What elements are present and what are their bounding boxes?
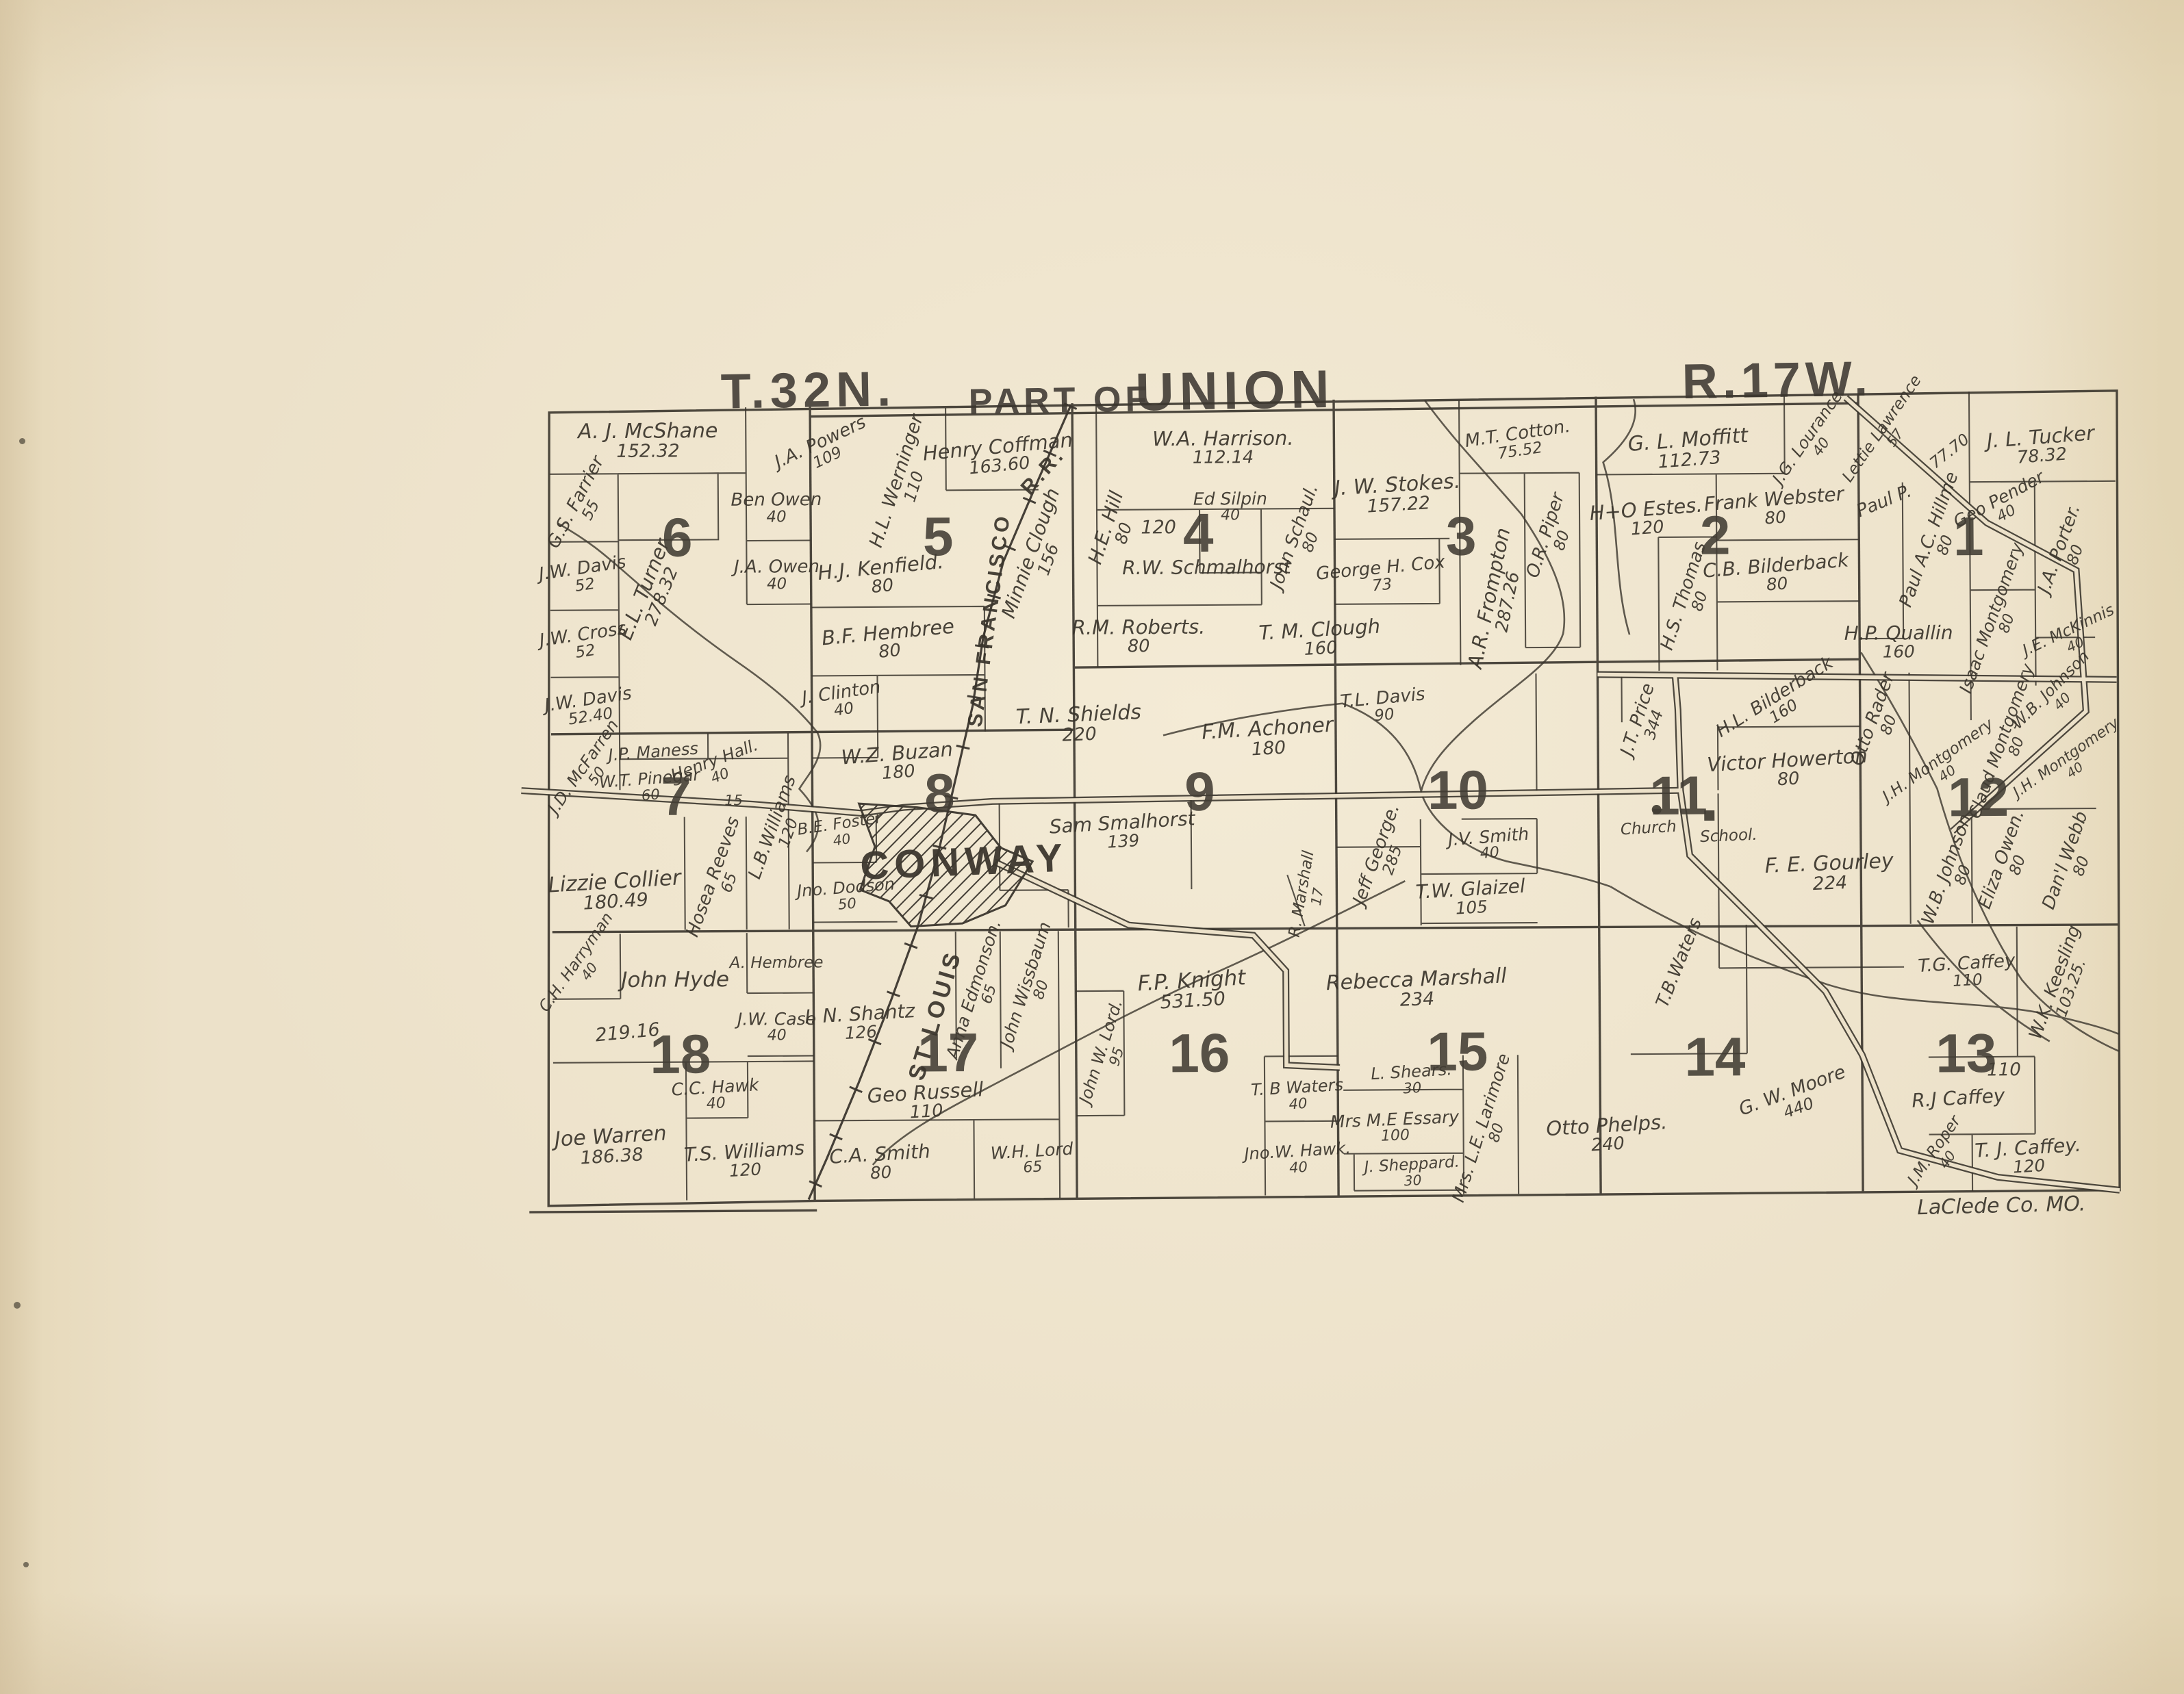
map-canvas: T.32N. PART OF UNION R.17W.	[0, 0, 2184, 1694]
parcel-owner: Ben Owen	[731, 491, 822, 510]
parcel-label: W.A. Harrison.112.14	[1152, 428, 1294, 467]
section-number: 12	[1948, 766, 2009, 830]
parcel-label: T.S. Williams120	[683, 1138, 806, 1183]
parcel-owner: H.P. Quallin	[1844, 623, 1953, 643]
parcel-label: A. Hembree	[729, 955, 823, 972]
section-number: 2	[1700, 504, 1731, 567]
parcel-label: T. B Waters40	[1251, 1077, 1345, 1114]
section-number: 11	[1649, 765, 1707, 828]
parcel-label: I. N. Shantz126	[804, 1001, 917, 1044]
parcel-label: J. L. Tucker78.32	[1986, 422, 2096, 469]
section-number: 13	[1935, 1022, 1997, 1086]
parcel-label: H.P. Quallin160	[1844, 623, 1953, 661]
parcel-label: F. E. Gourley224	[1764, 850, 1894, 895]
section-number: 16	[1169, 1022, 1230, 1086]
parcel-label: T.W. Glaizel105	[1415, 876, 1527, 920]
parcel-label: Rebecca Marshall234	[1325, 965, 1508, 1012]
section-number: 10	[1427, 758, 1489, 822]
parcel-label: T. N. Shields220	[1015, 702, 1142, 747]
plat-map-page: T.32N. PART OF UNION R.17W.	[0, 0, 2184, 1694]
parcel-owner: A. Hembree	[729, 955, 823, 972]
parcel-label: J.V. Smith40	[1447, 825, 1531, 865]
parcel-label: Joe Warren186.38	[554, 1122, 668, 1169]
parcel-label: Geo Russell110	[867, 1079, 985, 1125]
section-number: 8	[924, 762, 955, 825]
parcel-label: Mrs M.E Essary100	[1330, 1108, 1460, 1147]
parcel-label: Otto Phelps.240	[1546, 1112, 1669, 1157]
section-number: 9	[1184, 760, 1215, 823]
parcel-owner: 15	[724, 793, 743, 808]
school-label: School.	[1700, 827, 1758, 846]
parcel-label: T. J. Caffey.120	[1975, 1135, 2083, 1179]
parcel-label: T. M. Clough160	[1258, 615, 1382, 661]
parcel-label: John Hyde	[621, 968, 729, 991]
section-number: 14	[1684, 1025, 1746, 1089]
parcel-owner: R.M. Roberts.	[1072, 617, 1206, 638]
parcel-acreage: 160	[1844, 643, 1953, 661]
parcel-owner: 120	[1141, 518, 1176, 537]
parcel-owner: W.A. Harrison.	[1152, 428, 1293, 449]
parcel-acreage: 80	[1072, 637, 1206, 656]
parcel-label: C.A. Smith80	[829, 1141, 932, 1184]
parcel-label: W.H. Lord65	[990, 1140, 1074, 1179]
parcel-label: 120	[1141, 518, 1176, 537]
section-number: 15	[1427, 1020, 1488, 1083]
county-corner-note: LaClede Co. MO.	[1917, 1193, 2086, 1218]
section-number: 18	[650, 1023, 711, 1086]
parcel-label: R.J Caffey	[1911, 1086, 2005, 1111]
parcel-acreage: 40	[734, 576, 820, 593]
parcel-acreage: 40	[731, 509, 822, 526]
section-number: 5	[923, 505, 954, 568]
parcel-label: T.G. Caffey110	[1918, 952, 2017, 992]
parcel-owner: R.J Caffey	[1911, 1086, 2005, 1111]
parcel-label: R.M. Roberts.80	[1072, 617, 1206, 656]
section-number: 1	[1953, 505, 1984, 568]
parcel-label: Ben Owen40	[731, 491, 822, 526]
parcel-owner: A. J. McShane	[578, 420, 718, 442]
parcel-label: J. W. Stokes.157.22	[1334, 471, 1462, 518]
parcel-acreage: 112.14	[1152, 448, 1293, 467]
parcel-label: A. J. McShane152.32	[578, 420, 718, 461]
section-number: 7	[661, 765, 691, 828]
parcel-label: J. Sheppard.30	[1364, 1155, 1461, 1191]
parcel-acreage: 40	[737, 1028, 816, 1044]
parcel-label: Lizzie Collier180.49	[548, 867, 683, 916]
parcel-owner: J.A. Owen	[734, 558, 820, 577]
section-number: 6	[662, 506, 693, 569]
parcel-label: F.P. Knight531.50	[1137, 966, 1247, 1014]
parcel-owner: John Hyde	[621, 968, 729, 991]
section-number: 3	[1446, 505, 1477, 568]
parcel-label: 15	[724, 793, 743, 808]
parcel-label: J.A. Owen40	[734, 558, 820, 593]
parcel-label: F.M. Achoner180	[1201, 715, 1334, 762]
section-number: 4	[1183, 502, 1214, 565]
